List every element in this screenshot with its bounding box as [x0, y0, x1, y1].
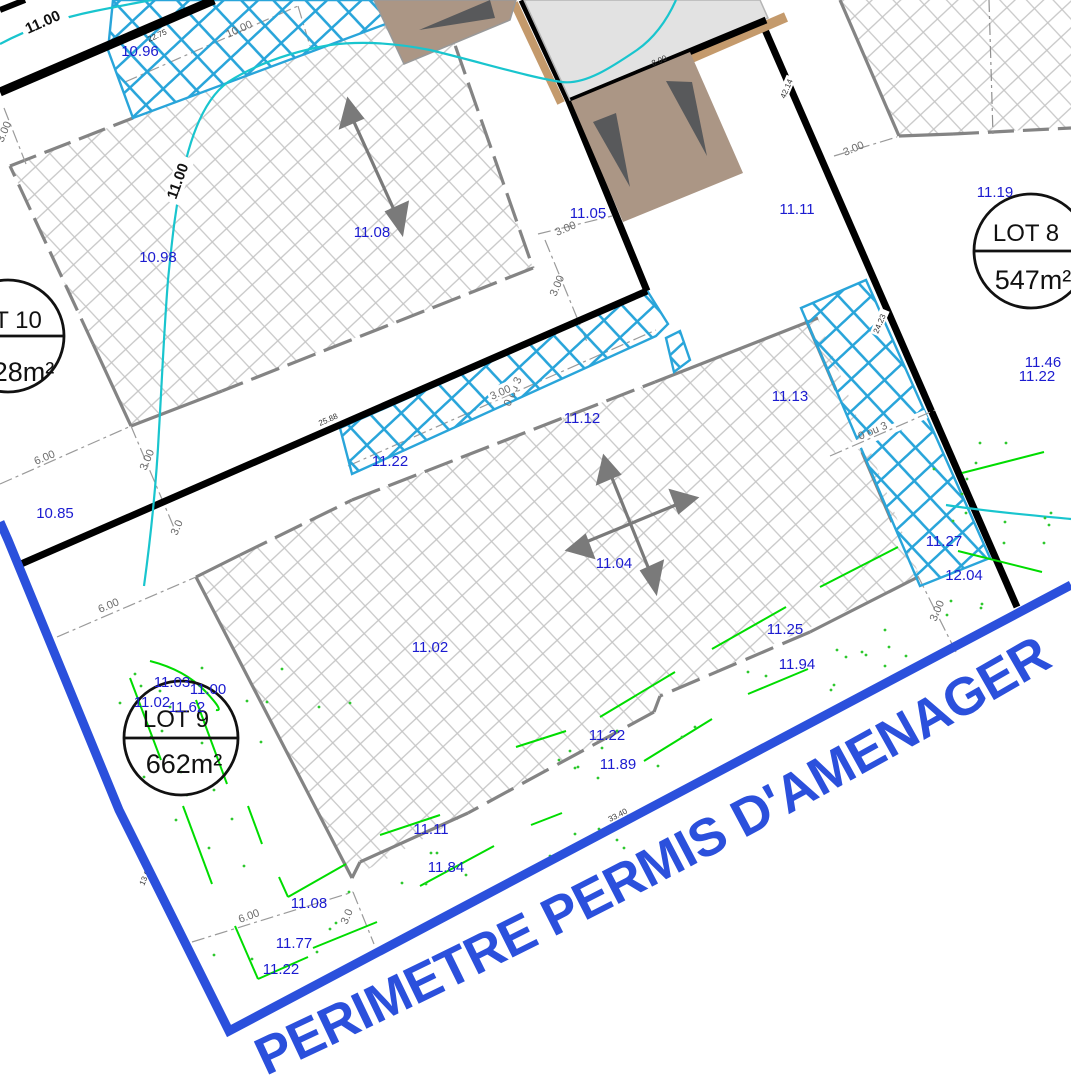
svg-text:LOT 10: LOT 10	[0, 307, 42, 334]
svg-text:11.05: 11.05	[570, 205, 606, 222]
svg-text:11.11: 11.11	[779, 201, 814, 218]
svg-text:LOT 8: LOT 8	[993, 220, 1059, 247]
svg-text:11.11: 11.11	[413, 821, 448, 838]
svg-text:12.04: 12.04	[945, 567, 983, 584]
svg-text:628m²: 628m²	[0, 357, 54, 387]
svg-text:11.25: 11.25	[767, 621, 803, 638]
svg-text:11.13: 11.13	[772, 388, 808, 405]
svg-text:10.96: 10.96	[121, 43, 159, 60]
svg-text:11.22: 11.22	[263, 961, 299, 978]
svg-text:11.22: 11.22	[1019, 368, 1055, 385]
svg-text:11.22: 11.22	[589, 727, 625, 744]
svg-text:662m²: 662m²	[146, 749, 223, 779]
svg-text:11.03: 11.03	[154, 674, 190, 691]
svg-text:11.02: 11.02	[412, 639, 448, 656]
svg-text:11.62: 11.62	[169, 699, 205, 716]
svg-text:11.22: 11.22	[372, 453, 408, 470]
svg-text:11.27: 11.27	[926, 533, 962, 550]
svg-text:11.08: 11.08	[354, 224, 390, 241]
svg-text:11.77: 11.77	[276, 935, 312, 952]
svg-text:11.04: 11.04	[596, 555, 632, 572]
svg-text:11.94: 11.94	[779, 656, 815, 673]
svg-text:11.84: 11.84	[428, 859, 464, 876]
svg-text:11.89: 11.89	[600, 756, 636, 773]
svg-text:11.02: 11.02	[134, 694, 170, 711]
svg-text:547m²: 547m²	[995, 265, 1071, 295]
svg-text:11.12: 11.12	[564, 410, 600, 427]
svg-text:11.00: 11.00	[190, 681, 226, 698]
svg-text:11.19: 11.19	[977, 184, 1013, 201]
svg-text:10.98: 10.98	[139, 249, 177, 266]
svg-text:10.85: 10.85	[36, 505, 74, 522]
svg-text:11.08: 11.08	[291, 895, 327, 912]
